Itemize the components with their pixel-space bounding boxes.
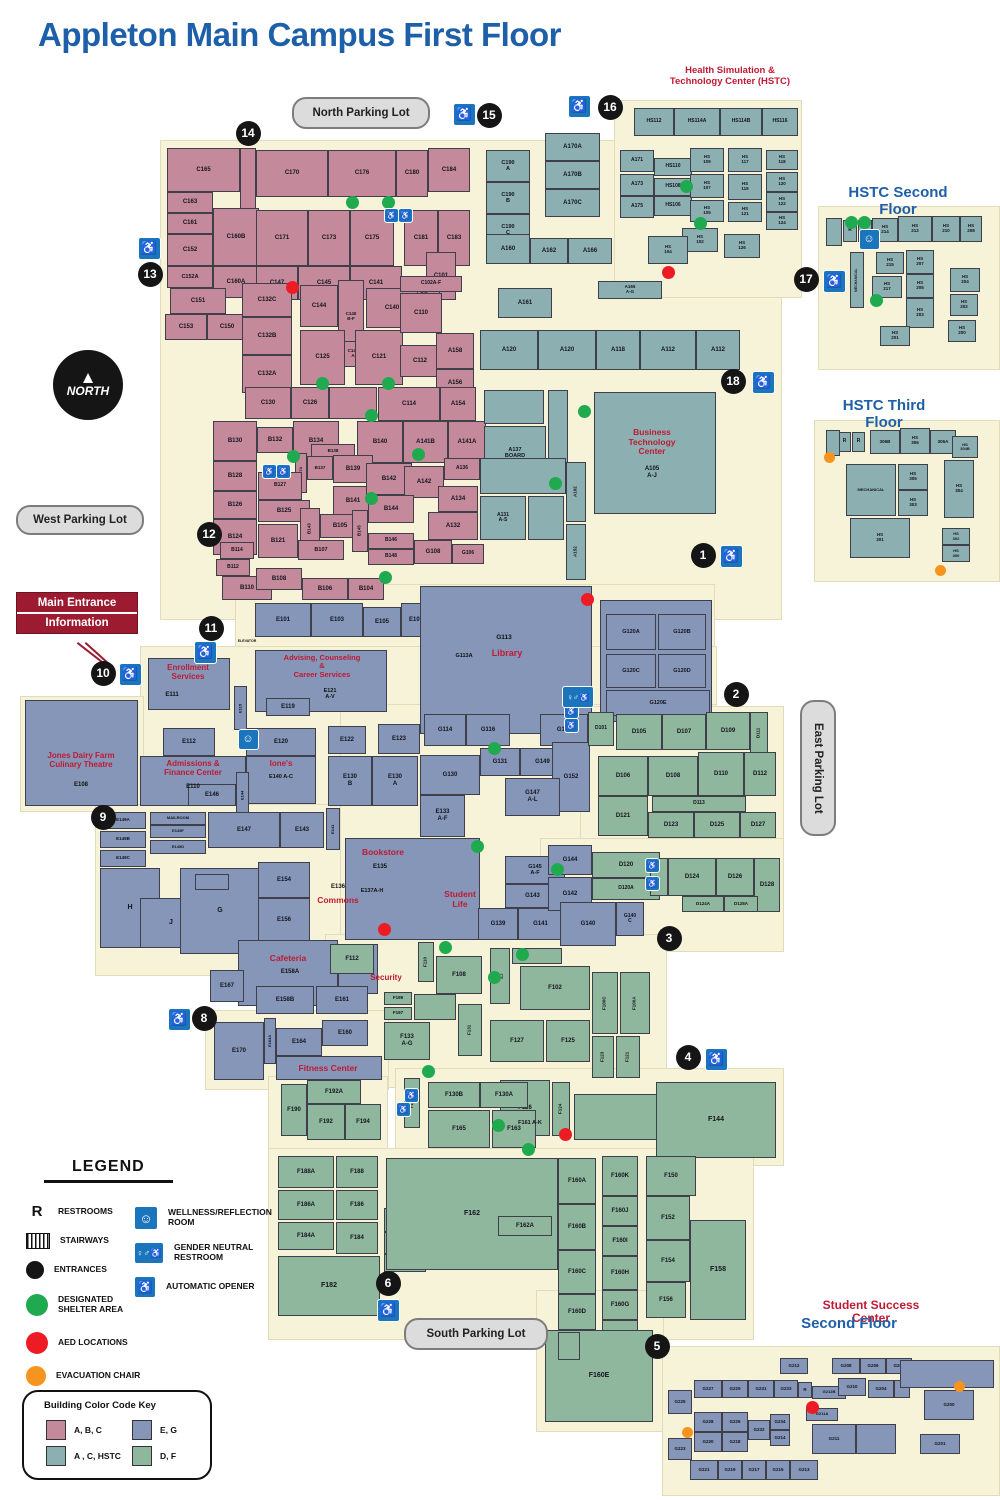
room-d107: D107 <box>662 714 706 750</box>
room-hs114b: HS114B <box>720 108 762 136</box>
room-e141: E141 <box>326 808 340 850</box>
room-c150: C150 <box>207 314 247 340</box>
room-a166: A166 <box>568 238 612 264</box>
room-unlabeled <box>484 390 544 424</box>
wheelchair-accessible-icon: ♿ <box>752 371 775 394</box>
parking-label-text: West Parking Lot <box>33 514 127 526</box>
restroom-icon: R <box>26 1203 48 1220</box>
room-g120c: G120C <box>606 654 656 688</box>
room-c144: C144 <box>300 285 338 327</box>
room-unlabeled <box>414 994 456 1020</box>
room-f144: F144 <box>656 1082 776 1158</box>
room-e149d: E149D <box>150 840 206 854</box>
room-hs-200: HS 200 <box>948 320 976 342</box>
gender-neutral-restroom-icon: ♀♂♿ <box>134 1242 164 1264</box>
legend-item-designated: DESIGNATED SHELTER AREA <box>26 1294 123 1316</box>
color-key-label: A, B, C <box>74 1425 102 1435</box>
room-f158: F158 <box>690 1220 746 1320</box>
room-hs-122: HS 122 <box>766 192 798 212</box>
room-f162: F162 <box>386 1158 558 1270</box>
room-e160: E160 <box>322 1020 368 1046</box>
designated-shelter-dot <box>316 377 329 390</box>
room-306b: 306B <box>870 430 900 454</box>
color-key-entry-e-g: E, G <box>132 1420 177 1440</box>
room-g120b: G120B <box>658 614 706 650</box>
room-g206: G206 <box>860 1358 886 1374</box>
room-g204: G204 <box>868 1380 894 1398</box>
main-entrance-line2: Information <box>17 614 137 633</box>
room-c190-b: C190 B <box>486 182 530 214</box>
room-f186: F186 <box>336 1190 378 1220</box>
gender-neutral-restroom-icon: ♀♂♿ <box>562 686 594 708</box>
aed-location-dot <box>806 1401 819 1414</box>
room-g212: G212 <box>780 1358 808 1374</box>
room-e167: E167 <box>210 970 244 1002</box>
room-g215: G215 <box>766 1460 790 1480</box>
room-hs-126: HS 126 <box>724 234 760 258</box>
entrance-marker-9: 9 <box>91 805 116 830</box>
room-d109: D109 <box>706 712 750 750</box>
legend: LEGEND RRESTROOMSSTAIRWAYSENTRANCESDESIG… <box>22 1158 322 1183</box>
room-g210: G210 <box>838 1378 866 1396</box>
campus-map: Appleton Main Campus First Floor ▲ NORTH… <box>0 0 1000 1500</box>
legend-item-evacuation-chair-label: EVACUATION CHAIR <box>56 1371 140 1381</box>
room-f160j: F160J <box>602 1196 638 1226</box>
color-key-entry-d-f: D, F <box>132 1446 176 1466</box>
room-f160a: F160A <box>558 1158 596 1204</box>
room-hs-204: HS 204 <box>950 268 980 292</box>
room-c126: C126 <box>291 387 329 419</box>
room-f121: F121 <box>616 1036 640 1078</box>
room-b106: B106 <box>302 578 348 600</box>
designated-shelter-dot <box>680 180 693 193</box>
room-b107: B107 <box>298 540 344 560</box>
entrance-marker-10: 10 <box>91 661 116 686</box>
room-hs-304b: HS 304B <box>952 436 978 458</box>
room-b104: B104 <box>348 578 384 600</box>
room-g213: G213 <box>790 1460 818 1480</box>
room-b146: B146 <box>368 533 414 549</box>
room-c160b: C160B <box>213 208 259 266</box>
room-a160: A160 <box>486 234 530 264</box>
legend-item-stairways-label: STAIRWAYS <box>60 1236 109 1246</box>
room-f100a: F100A <box>620 972 650 1034</box>
room-hs-104: HS 104 <box>648 236 688 264</box>
room-f160i: F160I <box>602 1226 638 1256</box>
room-f102: F102 <box>520 966 590 1010</box>
entrance-marker-4: 4 <box>676 1045 701 1070</box>
room-g141: G141 <box>518 908 563 940</box>
room-e158b: E158B <box>256 986 314 1014</box>
room-f150: F150 <box>646 1156 696 1196</box>
room-g131: G131 <box>480 748 520 776</box>
room-a141a: A141A <box>448 421 486 463</box>
room-c163: C163 <box>167 192 213 213</box>
room-f182: F182 <box>278 1256 380 1316</box>
room-f188: F188 <box>336 1156 378 1188</box>
main-entrance-callout: Main Entrance Information <box>16 592 138 634</box>
legend-item-automatic-opener-label: AUTOMATIC OPENER <box>166 1282 254 1292</box>
room-mailroom: MAILROOM <box>150 812 206 825</box>
designated-shelter-dot <box>488 971 501 984</box>
room-c121: C121 <box>355 330 403 385</box>
room-a152: A152 <box>566 524 586 580</box>
room-e161: E161 <box>316 986 368 1014</box>
room-mechanical: MECHANICAL <box>850 252 864 308</box>
room-hs112: HS112 <box>634 108 674 136</box>
designated-shelter-dot <box>488 742 501 755</box>
building-color-code-key: Building Color Code Key A, B, CE, GA , C… <box>22 1390 212 1480</box>
automatic-opener-icon: ♿ <box>134 1276 156 1298</box>
room-a171: A171 <box>620 150 654 172</box>
legend-item-restrooms: RRESTROOMS <box>26 1203 113 1220</box>
room-hs116: HS116 <box>762 108 798 136</box>
legend-item-automatic-opener: ♿AUTOMATIC OPENER <box>134 1276 254 1298</box>
room-b114: B114 <box>220 542 254 559</box>
entrance-marker-3: 3 <box>657 926 682 951</box>
automatic-opener-icon: ♿ <box>645 858 660 873</box>
room-d123: D123 <box>648 812 694 838</box>
room-hs-208: HS 208 <box>960 216 982 242</box>
designated-shelter-dot <box>287 450 300 463</box>
room-unlabeled <box>826 218 842 246</box>
color-swatch <box>132 1446 152 1466</box>
parking-label-text: East Parking Lot <box>812 723 824 814</box>
aed-location-dot <box>559 1128 572 1141</box>
room-e149f: E149F <box>150 825 206 838</box>
room-g229: G229 <box>722 1380 748 1398</box>
room-c114: C114 <box>378 387 440 421</box>
room-f108: F108 <box>436 956 482 994</box>
room-d101: D101 <box>588 712 614 746</box>
room-hs-304: HS 304 <box>944 460 974 518</box>
room-f131: F131 <box>458 1004 482 1056</box>
room-g234: G234 <box>770 1414 790 1430</box>
room-g226: G226 <box>722 1412 748 1432</box>
wheelchair-accessible-icon: ♿ <box>194 641 217 664</box>
entrance-marker-16: 16 <box>598 95 623 120</box>
room-a158: A158 <box>436 333 474 369</box>
north-arrow-icon: ▲ <box>80 372 97 384</box>
room-f194: F194 <box>345 1104 381 1140</box>
room-c153: C153 <box>165 314 207 340</box>
designated-shelter-dot <box>379 571 392 584</box>
room-unlabeled <box>25 700 138 806</box>
room-e122: E122 <box>328 726 366 754</box>
room-hs106: HS106 <box>654 196 692 216</box>
room-a136: A136 <box>444 458 480 480</box>
room-c171: C171 <box>256 210 308 266</box>
room-hs-119: HS 119 <box>728 174 762 200</box>
room-g114: G114 <box>424 714 466 746</box>
wheelchair-accessible-icon: ♿ <box>377 1299 400 1322</box>
room-e130-a: E130 A <box>372 756 418 806</box>
room-d108: D108 <box>648 756 698 796</box>
room-hs-210: HS 210 <box>932 216 960 242</box>
entrance-marker-13: 13 <box>138 262 163 287</box>
designated-shelter-dot <box>346 196 359 209</box>
room-a165-a-g: A165 A-G <box>598 281 662 299</box>
shelter-area-icon <box>26 1294 48 1316</box>
room-f190: F190 <box>281 1084 307 1136</box>
room-e143: E143 <box>280 812 324 848</box>
room-f199: F199 <box>384 992 412 1005</box>
room-hs-301: HS 301 <box>850 518 910 558</box>
room-e123: E123 <box>378 724 420 754</box>
room-hs-124: HS 124 <box>766 212 798 230</box>
legend-item-entrances-label: ENTRANCES <box>54 1265 107 1275</box>
room-unlabeled <box>900 1360 994 1388</box>
entrance-marker-8: 8 <box>192 1006 217 1031</box>
room-unlabeled <box>148 658 230 710</box>
room-a131-a-s: A131 A-S <box>480 496 526 540</box>
room-unlabeled <box>856 1424 896 1454</box>
room-g108: G108 <box>414 540 452 564</box>
room-hs-201: HS 201 <box>880 326 910 346</box>
evacuation-chair-dot <box>824 452 835 463</box>
evacuation-chair-dot <box>682 1427 693 1438</box>
room-a154: A154 <box>440 387 476 421</box>
room-e101: E101 <box>255 603 311 637</box>
automatic-opener-icon: ♿ <box>276 464 291 479</box>
wellness-reflection-room-icon: ☺ <box>859 229 880 250</box>
room-g231: G231 <box>748 1380 774 1398</box>
room-e130-b: E130 B <box>328 756 372 806</box>
automatic-opener-icon: ♿ <box>262 464 277 479</box>
room-g200: G200 <box>924 1390 974 1420</box>
room-a112: A112 <box>640 330 696 370</box>
room-d112: D112 <box>744 752 776 796</box>
room-f165: F165 <box>428 1110 490 1148</box>
color-key-entry-a-b-c: A, B, C <box>46 1420 102 1440</box>
room-b137: B137 <box>307 456 333 480</box>
room-g201: G201 <box>920 1434 960 1454</box>
room-hs-202: HS 202 <box>950 294 978 316</box>
room-a175: A175 <box>620 196 654 218</box>
room-a120: A120 <box>538 330 596 370</box>
designated-shelter-dot <box>365 409 378 422</box>
room-e115: E115 <box>234 686 247 730</box>
color-key-label: A , C, HSTC <box>74 1451 121 1461</box>
aed-location-dot <box>378 923 391 936</box>
room-hs-205: HS 205 <box>906 274 934 298</box>
room-g220: G220 <box>694 1432 722 1452</box>
legend-item-aed-locations: AED LOCATIONS <box>26 1332 128 1354</box>
room-hs-107: HS 107 <box>690 174 724 198</box>
room-g120d: G120D <box>658 654 706 688</box>
north-compass: ▲ NORTH <box>53 350 123 420</box>
room-b148: B148 <box>368 549 414 565</box>
entrance-marker-1: 1 <box>691 543 716 568</box>
automatic-opener-icon: ♿ <box>564 718 579 733</box>
room-e164: E164 <box>276 1028 322 1056</box>
room-f112: F112 <box>330 944 374 974</box>
room-f130b: F130B <box>428 1082 480 1108</box>
designated-shelter-dot <box>694 217 707 230</box>
room-b108: B108 <box>256 568 302 590</box>
automatic-opener-icon: ♿ <box>396 1102 411 1117</box>
room-hs110: HS110 <box>654 158 692 176</box>
room-hs-212: HS 212 <box>898 216 932 242</box>
room-hs-303: HS 303 <box>898 490 928 516</box>
room-f160g: F160G <box>602 1290 638 1320</box>
parking-label-west: West Parking Lot <box>16 505 144 535</box>
room-a170c: A170C <box>545 189 600 217</box>
room-unlabeled <box>246 756 316 804</box>
room-c112: C112 <box>400 345 440 377</box>
room-g219: G219 <box>718 1460 742 1480</box>
north-label: NORTH <box>67 384 109 398</box>
designated-shelter-dot <box>578 405 591 418</box>
room-hs-207: HS 207 <box>906 250 934 274</box>
automatic-opener-icon: ♿ <box>645 876 660 891</box>
color-key-label: D, F <box>160 1451 176 1461</box>
room-c152: C152 <box>167 234 213 266</box>
room-c110: C110 <box>400 293 442 333</box>
room-g140-c: G140 C <box>616 902 644 936</box>
area-label-health-simulation-: Health Simulation & Technology Center (H… <box>670 66 790 87</box>
room-g211: G211 <box>812 1424 856 1454</box>
parking-label-east: East Parking Lot <box>800 700 836 836</box>
room-b145: B145 <box>352 510 368 552</box>
legend-item-designated-label: DESIGNATED SHELTER AREA <box>58 1295 123 1315</box>
room-e105: E105 <box>363 607 401 637</box>
entrance-icon <box>26 1261 44 1279</box>
room-unlabeled <box>276 1056 382 1080</box>
room-hs-109: HS 109 <box>690 148 724 172</box>
room-c151: C151 <box>170 288 226 314</box>
main-entrance-line1: Main Entrance <box>17 593 137 614</box>
color-key-entry-a-c-hstc: A , C, HSTC <box>46 1446 121 1466</box>
designated-shelter-dot <box>551 863 564 876</box>
room-hs-121: HS 121 <box>728 202 762 222</box>
room-f154: F154 <box>646 1240 690 1282</box>
room-c132c: C132C <box>242 283 292 317</box>
automatic-opener-icon: ♿ <box>384 208 399 223</box>
evacuation-chair-dot <box>954 1381 965 1392</box>
room-f125: F125 <box>546 1020 590 1062</box>
legend-item-aed-locations-label: AED LOCATIONS <box>58 1338 128 1348</box>
aed-location-dot <box>581 593 594 606</box>
color-key-label: E, G <box>160 1425 177 1435</box>
wheelchair-accessible-icon: ♿ <box>119 663 142 686</box>
room-a170b: A170B <box>545 161 600 189</box>
room-unlabeled <box>528 496 564 540</box>
wheelchair-accessible-icon: ♿ <box>823 270 846 293</box>
room-d113: D113 <box>652 796 746 812</box>
room-c184: C184 <box>428 148 470 192</box>
designated-shelter-dot <box>382 377 395 390</box>
room-c173: C173 <box>308 210 350 266</box>
room-f197: F197 <box>384 1007 412 1020</box>
legend-item-gender-neutral: ♀♂♿GENDER NEUTRAL RESTROOM <box>134 1242 253 1264</box>
room-f192a: F192A <box>307 1080 361 1104</box>
room-g217: G217 <box>742 1460 766 1480</box>
legend-item-gender-neutral-label: GENDER NEUTRAL RESTROOM <box>174 1243 253 1263</box>
room-d121: D121 <box>598 796 648 836</box>
room-f184a: F184A <box>278 1222 334 1250</box>
room-g208: G208 <box>832 1358 860 1374</box>
room-e146: E146 <box>188 784 236 806</box>
color-key-title: Building Color Code Key <box>44 1400 210 1411</box>
room-e133-a-f: E133 A-F <box>420 795 465 837</box>
room-e103: E103 <box>311 603 363 637</box>
room-g147-a-l: G147 A-L <box>505 778 560 816</box>
evacuation-chair-dot <box>935 565 946 576</box>
designated-shelter-dot <box>858 216 871 229</box>
room-hs-117: HS 117 <box>728 148 762 172</box>
wheelchair-accessible-icon: ♿ <box>720 545 743 568</box>
room-e149b: E149B <box>100 831 146 848</box>
parking-label-north: North Parking Lot <box>292 97 430 129</box>
room-b112: B112 <box>216 559 250 576</box>
room-d126: D126 <box>716 858 754 896</box>
room-g233: G233 <box>774 1380 798 1398</box>
entrance-marker-15: 15 <box>477 103 502 128</box>
room-hs-302: HS 302 <box>942 528 970 545</box>
aed-icon <box>26 1332 48 1354</box>
room-e156: E156 <box>258 898 310 942</box>
designated-shelter-dot <box>439 941 452 954</box>
room-hs114a: HS114A <box>674 108 720 136</box>
room-a170a: A170A <box>545 133 600 161</box>
color-swatch <box>46 1446 66 1466</box>
room-a112: A112 <box>696 330 740 370</box>
color-swatch <box>132 1420 152 1440</box>
room-f186a: F186A <box>278 1190 334 1220</box>
room-e164a: E164A <box>264 1018 276 1064</box>
entrance-marker-14: 14 <box>236 121 261 146</box>
designated-shelter-dot <box>516 948 529 961</box>
room-f160k: F160K <box>602 1156 638 1196</box>
designated-shelter-dot <box>422 1065 435 1078</box>
room-f130a: F130A <box>480 1082 528 1108</box>
room-g116: G116 <box>466 714 510 746</box>
room-c165: C165 <box>167 148 240 192</box>
room-unlabeled <box>558 1332 580 1360</box>
room-f160c: F160C <box>558 1250 596 1294</box>
legend-item-restrooms-label: RESTROOMS <box>58 1207 113 1217</box>
entrance-marker-5: 5 <box>645 1334 670 1359</box>
room-hs-305: HS 305 <box>898 464 928 490</box>
room-a173: A173 <box>620 174 654 196</box>
room-f100c: F100C <box>592 972 618 1034</box>
designated-shelter-dot <box>549 477 562 490</box>
entrance-marker-2: 2 <box>724 682 749 707</box>
wheelchair-accessible-icon: ♿ <box>453 103 476 126</box>
wheelchair-accessible-icon: ♿ <box>168 1008 191 1031</box>
room-c102a-f: C102A-F <box>400 276 462 292</box>
parking-label-south: South Parking Lot <box>404 1318 548 1350</box>
stairways-icon <box>26 1233 50 1249</box>
room-b132: B132 <box>257 427 293 453</box>
room-g228: G228 <box>694 1412 722 1432</box>
room-a120: A120 <box>480 330 538 370</box>
entrance-marker-6: 6 <box>376 1271 401 1296</box>
room-d110: D110 <box>698 752 744 796</box>
room-e154: E154 <box>258 862 310 898</box>
room-hs-203: HS 203 <box>906 298 934 328</box>
room-c161: C161 <box>167 213 213 234</box>
room-d124: D124 <box>668 858 716 896</box>
color-swatch <box>46 1420 66 1440</box>
room-r: R <box>798 1382 812 1398</box>
room-a118: A118 <box>596 330 640 370</box>
room-d124a: D124A <box>682 896 724 912</box>
room-c132b: C132B <box>242 317 292 355</box>
room-f127: F127 <box>490 1020 544 1062</box>
room-a132: A132 <box>428 512 478 540</box>
